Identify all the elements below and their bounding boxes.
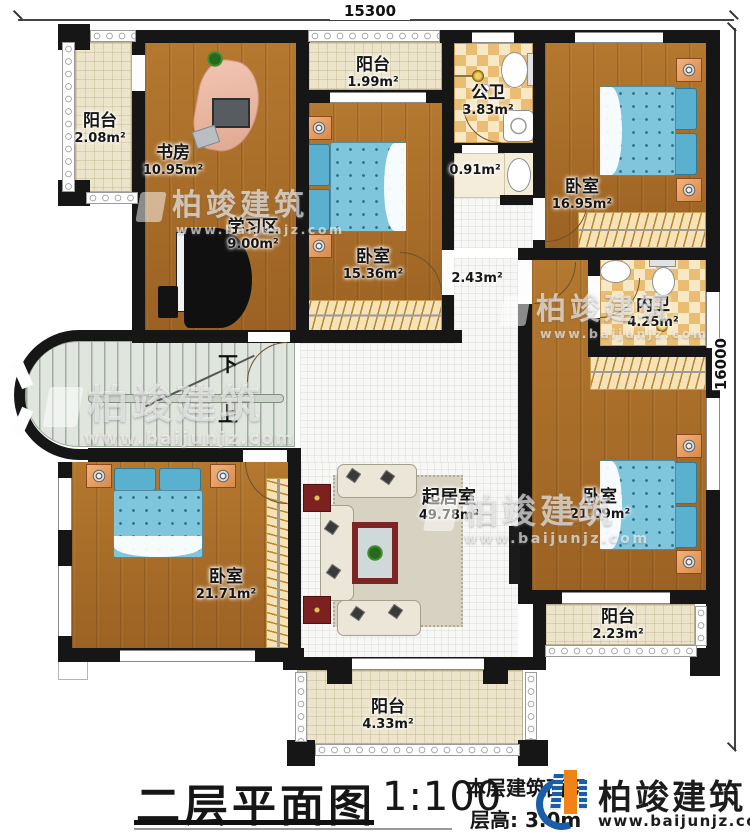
floor-plan-page: { "dimensions": { "top": "15300", "right…: [0, 0, 750, 840]
window: [562, 592, 670, 604]
window: [706, 398, 720, 490]
room-area: 0.91m²: [444, 164, 506, 179]
watermark-url: www.baijunjz.com: [84, 428, 295, 448]
window: [120, 650, 255, 662]
dimension-top-label: 15300: [330, 2, 410, 20]
logo-building-icon: [579, 780, 587, 810]
room-name: 阳台: [338, 698, 438, 718]
title-underline: [134, 820, 374, 825]
headboard-cushion: [114, 468, 156, 491]
watermark-text: 柏竣建筑: [464, 492, 616, 532]
side-table: [303, 484, 331, 512]
room-area: 1.99m²: [330, 76, 416, 91]
nightstand: [676, 178, 702, 202]
window: [352, 658, 484, 670]
nightstand: [676, 58, 702, 82]
balcony-railing: [545, 645, 697, 657]
door-opening: [462, 145, 498, 153]
door-opening: [132, 55, 145, 91]
headboard-cushion: [159, 468, 201, 491]
bed-sheet: [384, 143, 406, 231]
room-label-wash-niche: 0.91m²: [444, 164, 506, 179]
room-name: 阳台: [58, 112, 142, 132]
room-name: 卧室: [328, 248, 418, 268]
dimension-tick: [727, 22, 737, 32]
room-name: 公卫: [450, 84, 526, 104]
nightstand: [210, 464, 236, 488]
wall-segment: [442, 30, 454, 343]
wardrobe-bedroom-top: [302, 300, 442, 331]
bed-sheet: [114, 536, 202, 557]
sofa-bottom: [337, 600, 421, 636]
room-name: 书房: [128, 144, 218, 164]
watermark-text: 柏竣建筑: [88, 382, 264, 428]
sofa-left: [320, 505, 354, 601]
wardrobe-bedroom-tr: [578, 212, 706, 248]
corridor-floor-upper: [454, 198, 533, 248]
watermark: 柏竣建筑 www.baijunjz.com: [502, 284, 709, 341]
headboard-cushion: [674, 133, 697, 175]
room-area: 2.23m²: [568, 628, 668, 643]
watermark: 柏竣建筑 www.baijunjz.com: [138, 180, 345, 237]
valve-icon: [472, 70, 484, 82]
room-name: 卧室: [532, 178, 632, 198]
side-table: [303, 596, 331, 624]
balcony-railing: [315, 744, 520, 756]
headboard-cushion: [674, 506, 697, 548]
headboard-cushion: [674, 462, 697, 504]
wall-segment: [132, 30, 310, 43]
water-pipe: [454, 75, 474, 77]
watermark-logo-icon: [42, 387, 83, 427]
room-label-bedroom-bl: 卧室 21.71m²: [176, 568, 276, 602]
watermark-url: www.baijunjz.com: [464, 531, 650, 547]
dimension-line-right: [734, 28, 736, 750]
window: [58, 478, 72, 530]
room-label-balcony-bottom: 阳台 4.33m²: [338, 698, 438, 732]
wall-segment: [588, 346, 720, 357]
door-opening: [248, 332, 290, 342]
room-area: 21.71m²: [176, 588, 276, 603]
watermark-logo-icon: [499, 296, 530, 326]
bed-sheet: [600, 87, 622, 175]
wall-segment: [483, 657, 508, 684]
dimension-right-label: 16000: [712, 338, 730, 390]
floor-plan: 下 上 阳台 2.08m² 书房 10.95m² 学习区 9.00m² 阳台 1…: [0, 0, 750, 770]
room-label-study: 书房 10.95m²: [128, 144, 218, 178]
room-label-balcony-tl: 阳台 2.08m²: [58, 112, 142, 146]
wall-segment: [518, 740, 548, 766]
watermark: 柏竣建筑 www.baijunjz.com: [426, 484, 650, 547]
room-label-balcony-top: 阳台 1.99m²: [330, 56, 416, 90]
door-opening: [243, 450, 287, 462]
room-area: 9.00m²: [208, 238, 298, 253]
nightstand: [86, 464, 112, 488]
watermark: 柏竣建筑 www.baijunjz.com: [46, 372, 295, 448]
plant-icon-study: [206, 50, 224, 68]
room-area: 4.33m²: [338, 718, 438, 733]
room-label-public-bath: 公卫 3.83m²: [450, 84, 526, 118]
nightstand: [676, 550, 702, 574]
title-underline-thin: [134, 828, 452, 830]
wardrobe-inner-bath: [590, 354, 706, 390]
watermark-logo-icon: [135, 192, 166, 222]
balcony-railing: [295, 672, 307, 742]
balcony-railing: [90, 30, 136, 42]
room-label-bedroom-top: 卧室 15.36m²: [328, 248, 418, 282]
window: [330, 92, 426, 103]
wall-segment: [518, 248, 720, 260]
watermark-url: www.baijunjz.com: [540, 326, 709, 341]
nightstand: [676, 434, 702, 458]
logo-url: www.baijunjz.com: [598, 812, 750, 830]
watermark-text: 柏竣建筑: [536, 292, 672, 327]
wall-segment: [327, 657, 352, 684]
watermark-url: www.baijunjz.com: [176, 222, 345, 237]
nightstand: [306, 116, 332, 140]
window: [58, 566, 72, 636]
room-area: 16.95m²: [532, 198, 632, 213]
hallway-floor: [300, 343, 518, 462]
headboard-cushion: [674, 88, 697, 130]
window: [472, 32, 514, 43]
room-label-balcony-br: 阳台 2.23m²: [568, 608, 668, 642]
room-name: 阳台: [568, 608, 668, 628]
wall-segment: [287, 740, 315, 766]
plant-icon-table: [366, 544, 384, 562]
window: [575, 32, 663, 43]
room-area: 3.83m²: [450, 104, 526, 119]
room-name: 阳台: [330, 56, 416, 76]
wall-segment: [288, 462, 301, 662]
room-area: 10.95m²: [128, 164, 218, 179]
sink-icon-niche: [507, 158, 531, 192]
title-block: 二层平面图 1:100 本层建筑面积 层高: 3.0m 柏竣建筑 www.bai…: [0, 766, 750, 840]
balcony-railing: [525, 672, 537, 740]
balcony-railing: [86, 192, 138, 204]
piano-bench: [158, 286, 178, 318]
balcony-railing: [308, 30, 440, 42]
toilet-icon-public: [501, 52, 528, 88]
room-label-bedroom-tr: 卧室 16.95m²: [532, 178, 632, 212]
logo-building-icon: [564, 770, 577, 814]
room-name: 卧室: [176, 568, 276, 588]
balcony-railing: [695, 606, 707, 646]
monitor-icon: [212, 98, 250, 128]
watermark-logo-icon: [423, 497, 459, 531]
watermark-text: 柏竣建筑: [172, 188, 308, 223]
room-area: 15.36m²: [328, 268, 418, 283]
